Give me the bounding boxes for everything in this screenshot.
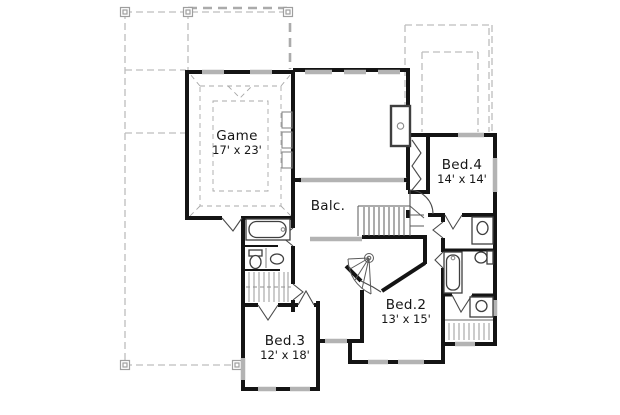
vanity-sink-icon bbox=[470, 297, 493, 317]
game-shelf-niche bbox=[282, 112, 292, 168]
bathtub-icon bbox=[444, 252, 462, 293]
bathtub-icon bbox=[246, 219, 290, 240]
closet-rod bbox=[246, 272, 291, 302]
toilet-icon bbox=[475, 251, 493, 264]
porch-post-icon bbox=[121, 8, 293, 370]
sink-icon bbox=[266, 248, 284, 268]
tray-ceiling-lines bbox=[190, 74, 291, 216]
floor-plan: Game 17' x 23' Balc. Bed.4 14' x 14' Bed… bbox=[0, 0, 620, 415]
floor-plan-drawing bbox=[0, 0, 620, 415]
closet-rod bbox=[445, 320, 493, 340]
toilet-icon bbox=[249, 250, 262, 269]
media-niche-icon bbox=[391, 106, 410, 146]
vanity-sink-icon bbox=[472, 217, 493, 244]
balcony-railing bbox=[293, 180, 410, 239]
roof-overhang-lines bbox=[121, 8, 493, 370]
